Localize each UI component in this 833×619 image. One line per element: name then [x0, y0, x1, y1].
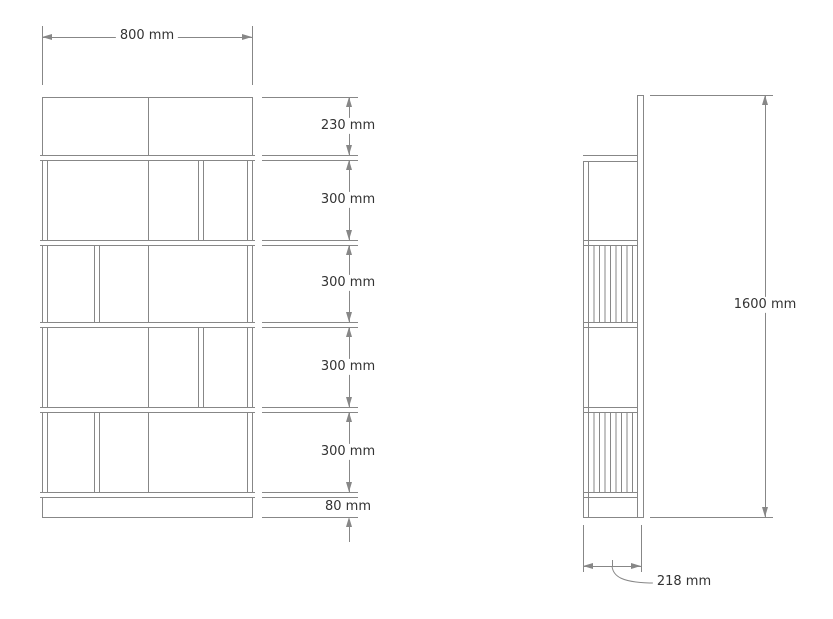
height-dim-label-300-3: 300 mm [317, 359, 379, 375]
front-row-5-partition [94, 412, 100, 492]
total-height-ext-bottom [650, 517, 773, 518]
depth-dim-leader-curve [605, 560, 660, 590]
front-row-4-partition [198, 327, 204, 407]
height-dim-arrow-down-1 [346, 145, 352, 155]
front-row-4-left-panel-line [47, 327, 48, 407]
front-row-5-center-divider [148, 412, 149, 492]
side-view-top-shelf [583, 155, 637, 162]
front-row-4-center-divider [148, 327, 149, 407]
front-row-2-center-divider [148, 160, 149, 240]
front-row-4-right-panel-line [247, 327, 248, 407]
height-dim-ext-shelf1a [262, 155, 358, 156]
height-dim-segment-6-stem [349, 527, 350, 542]
height-dim-ext-shelf4a [262, 407, 358, 408]
height-dim-ext-bottom [262, 517, 358, 518]
total-height-arrow-down [762, 507, 768, 517]
height-dim-ext-shelf3b [262, 327, 358, 328]
height-dim-arrow-up-6 [346, 517, 352, 527]
height-dim-ext-shelf2a [262, 240, 358, 241]
side-view-bottom-line [583, 517, 644, 518]
height-dim-ext-shelf3a [262, 322, 358, 323]
front-view-row-1 [42, 97, 253, 155]
front-row-2-left-panel-line [47, 160, 48, 240]
front-view-row-5 [42, 412, 253, 492]
front-view-row-4 [42, 327, 253, 407]
total-height-dim-label: 1600 mm [730, 297, 801, 313]
depth-dim-label: 218 mm [653, 574, 715, 590]
front-row-3-partition [94, 245, 100, 322]
front-view-plinth [42, 497, 253, 518]
height-dim-arrow-down-5 [346, 482, 352, 492]
depth-dim-arrow-left [583, 563, 593, 569]
side-view-left-edge-outer [583, 162, 584, 517]
height-dim-ext-shelf5b [262, 497, 358, 498]
height-dim-ext-shelf2b [262, 245, 358, 246]
height-dim-arrow-up-4 [346, 327, 352, 337]
front-row-2-right-panel-line [247, 160, 248, 240]
front-row-5-right-panel-line [247, 412, 248, 492]
height-dim-ext-shelf5a [262, 492, 358, 493]
side-view-shelf-2 [583, 322, 637, 328]
side-view-back-panel [637, 95, 644, 517]
height-dim-label-230: 230 mm [317, 118, 379, 134]
front-row-3-center-divider [148, 245, 149, 322]
height-dim-arrow-up-3 [346, 245, 352, 255]
front-view-row-3 [42, 245, 253, 322]
front-row-2-partition [198, 160, 204, 240]
height-dim-ext-shelf1b [262, 160, 358, 161]
height-dim-arrow-up-2 [346, 160, 352, 170]
front-row-5-left-panel-line [47, 412, 48, 492]
side-view-slat-panel-2 [588, 413, 637, 492]
front-row-3-left-panel-line [47, 245, 48, 322]
height-dim-arrow-down-2 [346, 230, 352, 240]
height-dim-arrow-down-3 [346, 312, 352, 322]
side-view-slat-panel-1 [588, 246, 637, 322]
height-dim-arrow-down-4 [346, 397, 352, 407]
side-view-shelf-4 [583, 492, 637, 498]
height-dim-arrow-up-1 [346, 97, 352, 107]
technical-drawing-canvas: 800 mm 230 mm 300 mm 300 mm 300 mm 300 m… [0, 0, 833, 619]
height-dim-label-300-4: 300 mm [317, 444, 379, 460]
width-dim-ext-right [252, 26, 253, 85]
width-dim-label: 800 mm [116, 28, 178, 44]
front-view-row-2 [42, 160, 253, 240]
front-row-1-center-divider [148, 98, 149, 155]
total-height-ext-top [650, 95, 773, 96]
total-height-arrow-up [762, 95, 768, 105]
height-dim-label-300-1: 300 mm [317, 192, 379, 208]
height-dim-label-300-2: 300 mm [317, 275, 379, 291]
front-row-3-right-panel-line [247, 245, 248, 322]
height-dim-ext-shelf4b [262, 412, 358, 413]
width-dim-arrow-right [242, 34, 252, 40]
width-dim-arrow-left [42, 34, 52, 40]
height-dim-ext-top [262, 97, 358, 98]
height-dim-arrow-up-5 [346, 412, 352, 422]
height-dim-label-80: 80 mm [321, 499, 375, 515]
